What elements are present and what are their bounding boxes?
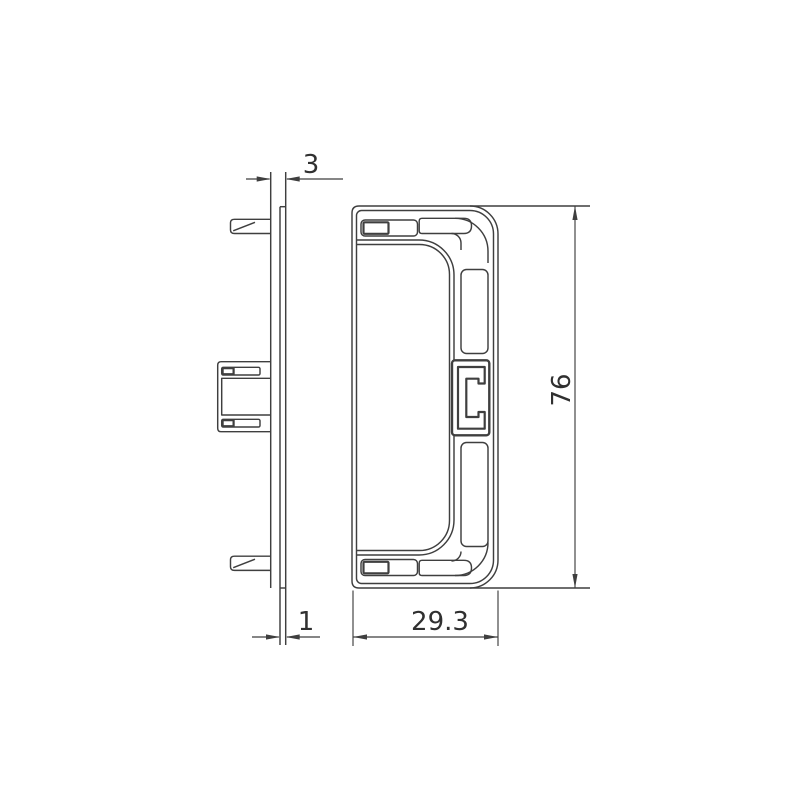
side-top-pin (231, 219, 271, 233)
dimension-label-thickness: 1 (298, 607, 315, 637)
arrowhead (286, 176, 300, 181)
front-upper-channel (461, 270, 488, 354)
side-clip-bracket (218, 362, 271, 432)
dimension-label-width: 29.3 (411, 607, 469, 637)
arrowhead (353, 634, 367, 639)
dimension-depth-3: 3 (246, 150, 343, 182)
arrowhead (266, 634, 280, 639)
dimension-label-height: 76 (547, 373, 577, 406)
side-bottom-pin-chamfer (233, 559, 255, 568)
dimension-width-29-3: 29.3 (353, 591, 498, 647)
dimension-label-depth: 3 (303, 150, 320, 180)
side-view (218, 172, 286, 645)
arrowhead (572, 206, 577, 220)
front-bottom-slot (361, 560, 418, 576)
front-cavity-inner-line (357, 245, 450, 551)
front-lower-channel (461, 443, 488, 547)
side-bottom-pin (231, 556, 271, 570)
drawing-canvas: 3 1 29.3 76 (0, 0, 800, 800)
front-cavity-outer-line (357, 240, 455, 555)
front-top-corner-channel (419, 218, 488, 263)
front-centre-clip (452, 360, 489, 435)
arrowhead (572, 574, 577, 588)
front-bottom-corner-channel (419, 543, 488, 576)
side-top-pin-chamfer (233, 222, 255, 231)
arrowhead (484, 634, 498, 639)
arrowhead (257, 176, 271, 181)
drawing-page: 3 1 29.3 76 (0, 0, 800, 800)
front-top-slot (361, 220, 418, 236)
dimension-height-76: 76 (547, 206, 578, 588)
